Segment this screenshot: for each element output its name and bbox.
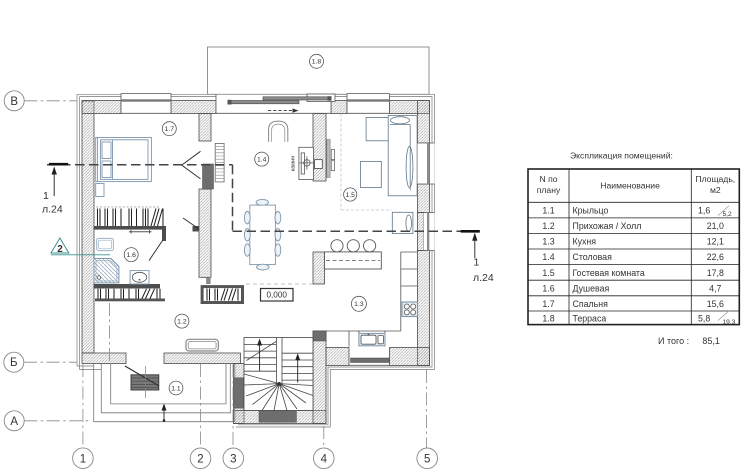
svg-text:17,8: 17,8 (707, 268, 724, 278)
svg-text:1: 1 (43, 190, 49, 202)
svg-text:4: 4 (321, 453, 328, 465)
svg-text:1.1: 1.1 (171, 385, 181, 392)
svg-text:И того :: И того : (658, 336, 689, 346)
svg-text:Столовая: Столовая (573, 252, 613, 262)
svg-text:А: А (10, 416, 18, 428)
svg-text:15,6: 15,6 (707, 299, 724, 309)
svg-text:22,6: 22,6 (707, 252, 724, 262)
svg-text:5: 5 (424, 453, 430, 465)
svg-text:1: 1 (474, 257, 480, 269)
svg-text:Б: Б (10, 357, 18, 369)
svg-text:5,8: 5,8 (698, 314, 710, 324)
svg-text:1.2: 1.2 (177, 319, 187, 326)
svg-text:Кухня: Кухня (573, 237, 597, 247)
svg-text:1.5: 1.5 (345, 192, 355, 199)
svg-text:В: В (10, 96, 18, 108)
svg-text:1.5: 1.5 (542, 268, 554, 278)
svg-text:3: 3 (230, 453, 236, 465)
svg-text:1.3: 1.3 (354, 301, 364, 308)
svg-text:1.2: 1.2 (542, 221, 554, 231)
svg-text:21,0: 21,0 (707, 221, 724, 231)
svg-text:1: 1 (80, 453, 86, 465)
svg-text:1.7: 1.7 (165, 126, 175, 133)
svg-text:1.7: 1.7 (542, 299, 554, 309)
svg-text:5,2: 5,2 (723, 211, 732, 218)
svg-text:0,000: 0,000 (266, 291, 287, 300)
svg-text:85,1: 85,1 (702, 336, 720, 346)
svg-text:1.3: 1.3 (542, 237, 554, 247)
svg-text:2: 2 (57, 244, 63, 255)
svg-text:1.4: 1.4 (542, 252, 554, 262)
svg-text:1.6: 1.6 (542, 283, 554, 293)
svg-text:Гостевая комната: Гостевая комната (573, 268, 645, 278)
svg-text:12,1: 12,1 (707, 237, 724, 247)
svg-text:Экспликация помещений:: Экспликация помещений: (570, 151, 673, 161)
svg-text:19,3: 19,3 (723, 319, 736, 326)
svg-text:Площадь,: Площадь, (695, 174, 735, 184)
svg-text:N по: N по (539, 174, 557, 184)
svg-text:Терраса: Терраса (573, 314, 607, 324)
svg-text:плану: плану (537, 185, 561, 195)
svg-text:1.8: 1.8 (312, 59, 322, 66)
svg-text:2: 2 (197, 453, 203, 465)
svg-text:м2: м2 (710, 185, 721, 195)
svg-text:1.6: 1.6 (126, 252, 136, 259)
svg-text:Душевая: Душевая (573, 283, 610, 293)
svg-text:4,7: 4,7 (709, 283, 721, 293)
svg-text:1.8: 1.8 (542, 314, 554, 324)
svg-text:камин: камин (291, 156, 297, 172)
svg-text:1.1: 1.1 (542, 206, 554, 216)
svg-text:Наименование: Наименование (600, 181, 660, 191)
svg-text:Спальня: Спальня (573, 299, 609, 309)
svg-text:л.24: л.24 (473, 272, 494, 284)
svg-text:1.4: 1.4 (257, 157, 267, 164)
svg-text:Крыльцо: Крыльцо (573, 206, 609, 216)
svg-text:л.24: л.24 (42, 204, 63, 216)
svg-text:1,6: 1,6 (698, 206, 710, 216)
svg-text:Прихожая / Холл: Прихожая / Холл (573, 221, 642, 231)
